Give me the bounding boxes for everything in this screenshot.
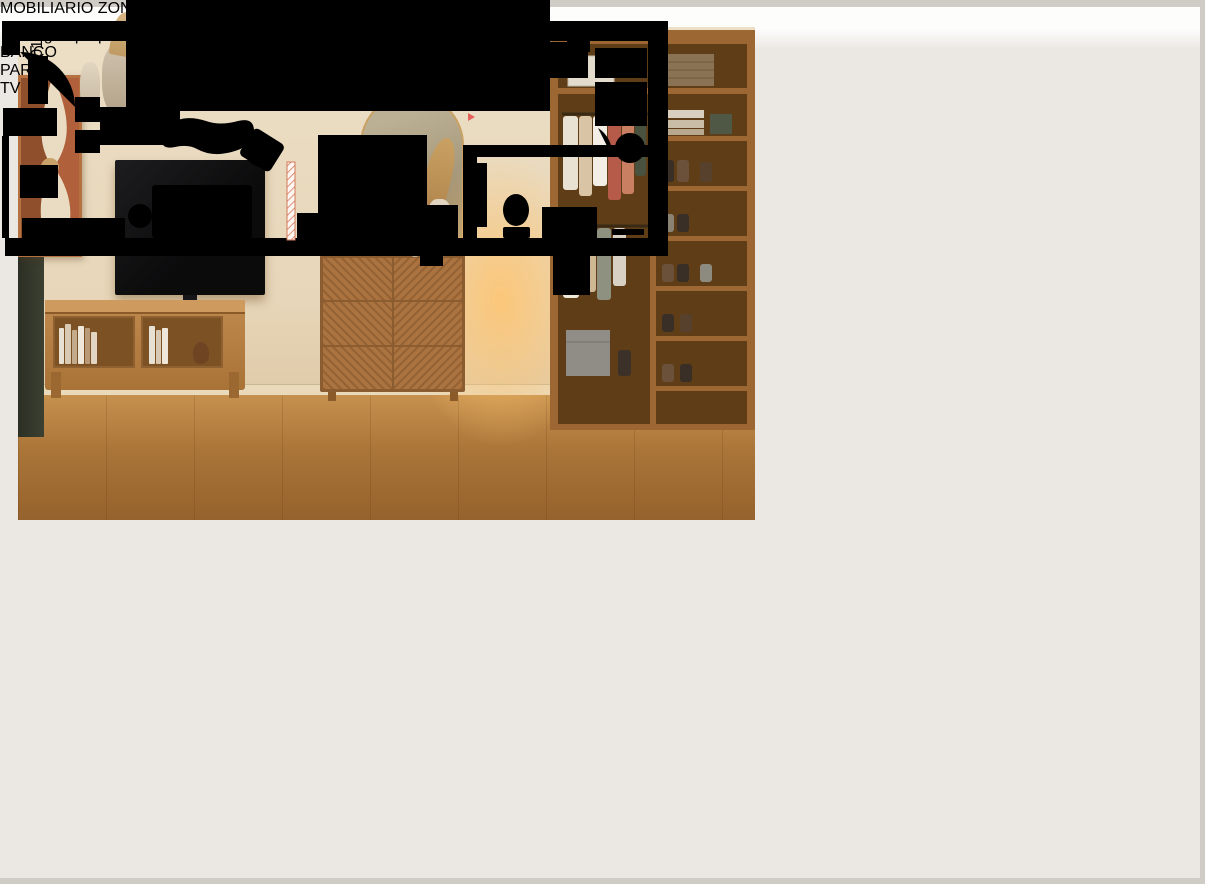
door-label: ap 01 (29, 40, 46, 80)
presentation-page: ALZADO LATERAL A-1 imagen propuesta apro… (0, 0, 1205, 884)
floor-plan: ap 01 (0, 0, 670, 308)
plan-bedroom (287, 113, 475, 240)
plan-bathroom (470, 150, 656, 238)
plan-highlight-zone (126, 0, 550, 111)
plan-kitchen (20, 165, 125, 242)
